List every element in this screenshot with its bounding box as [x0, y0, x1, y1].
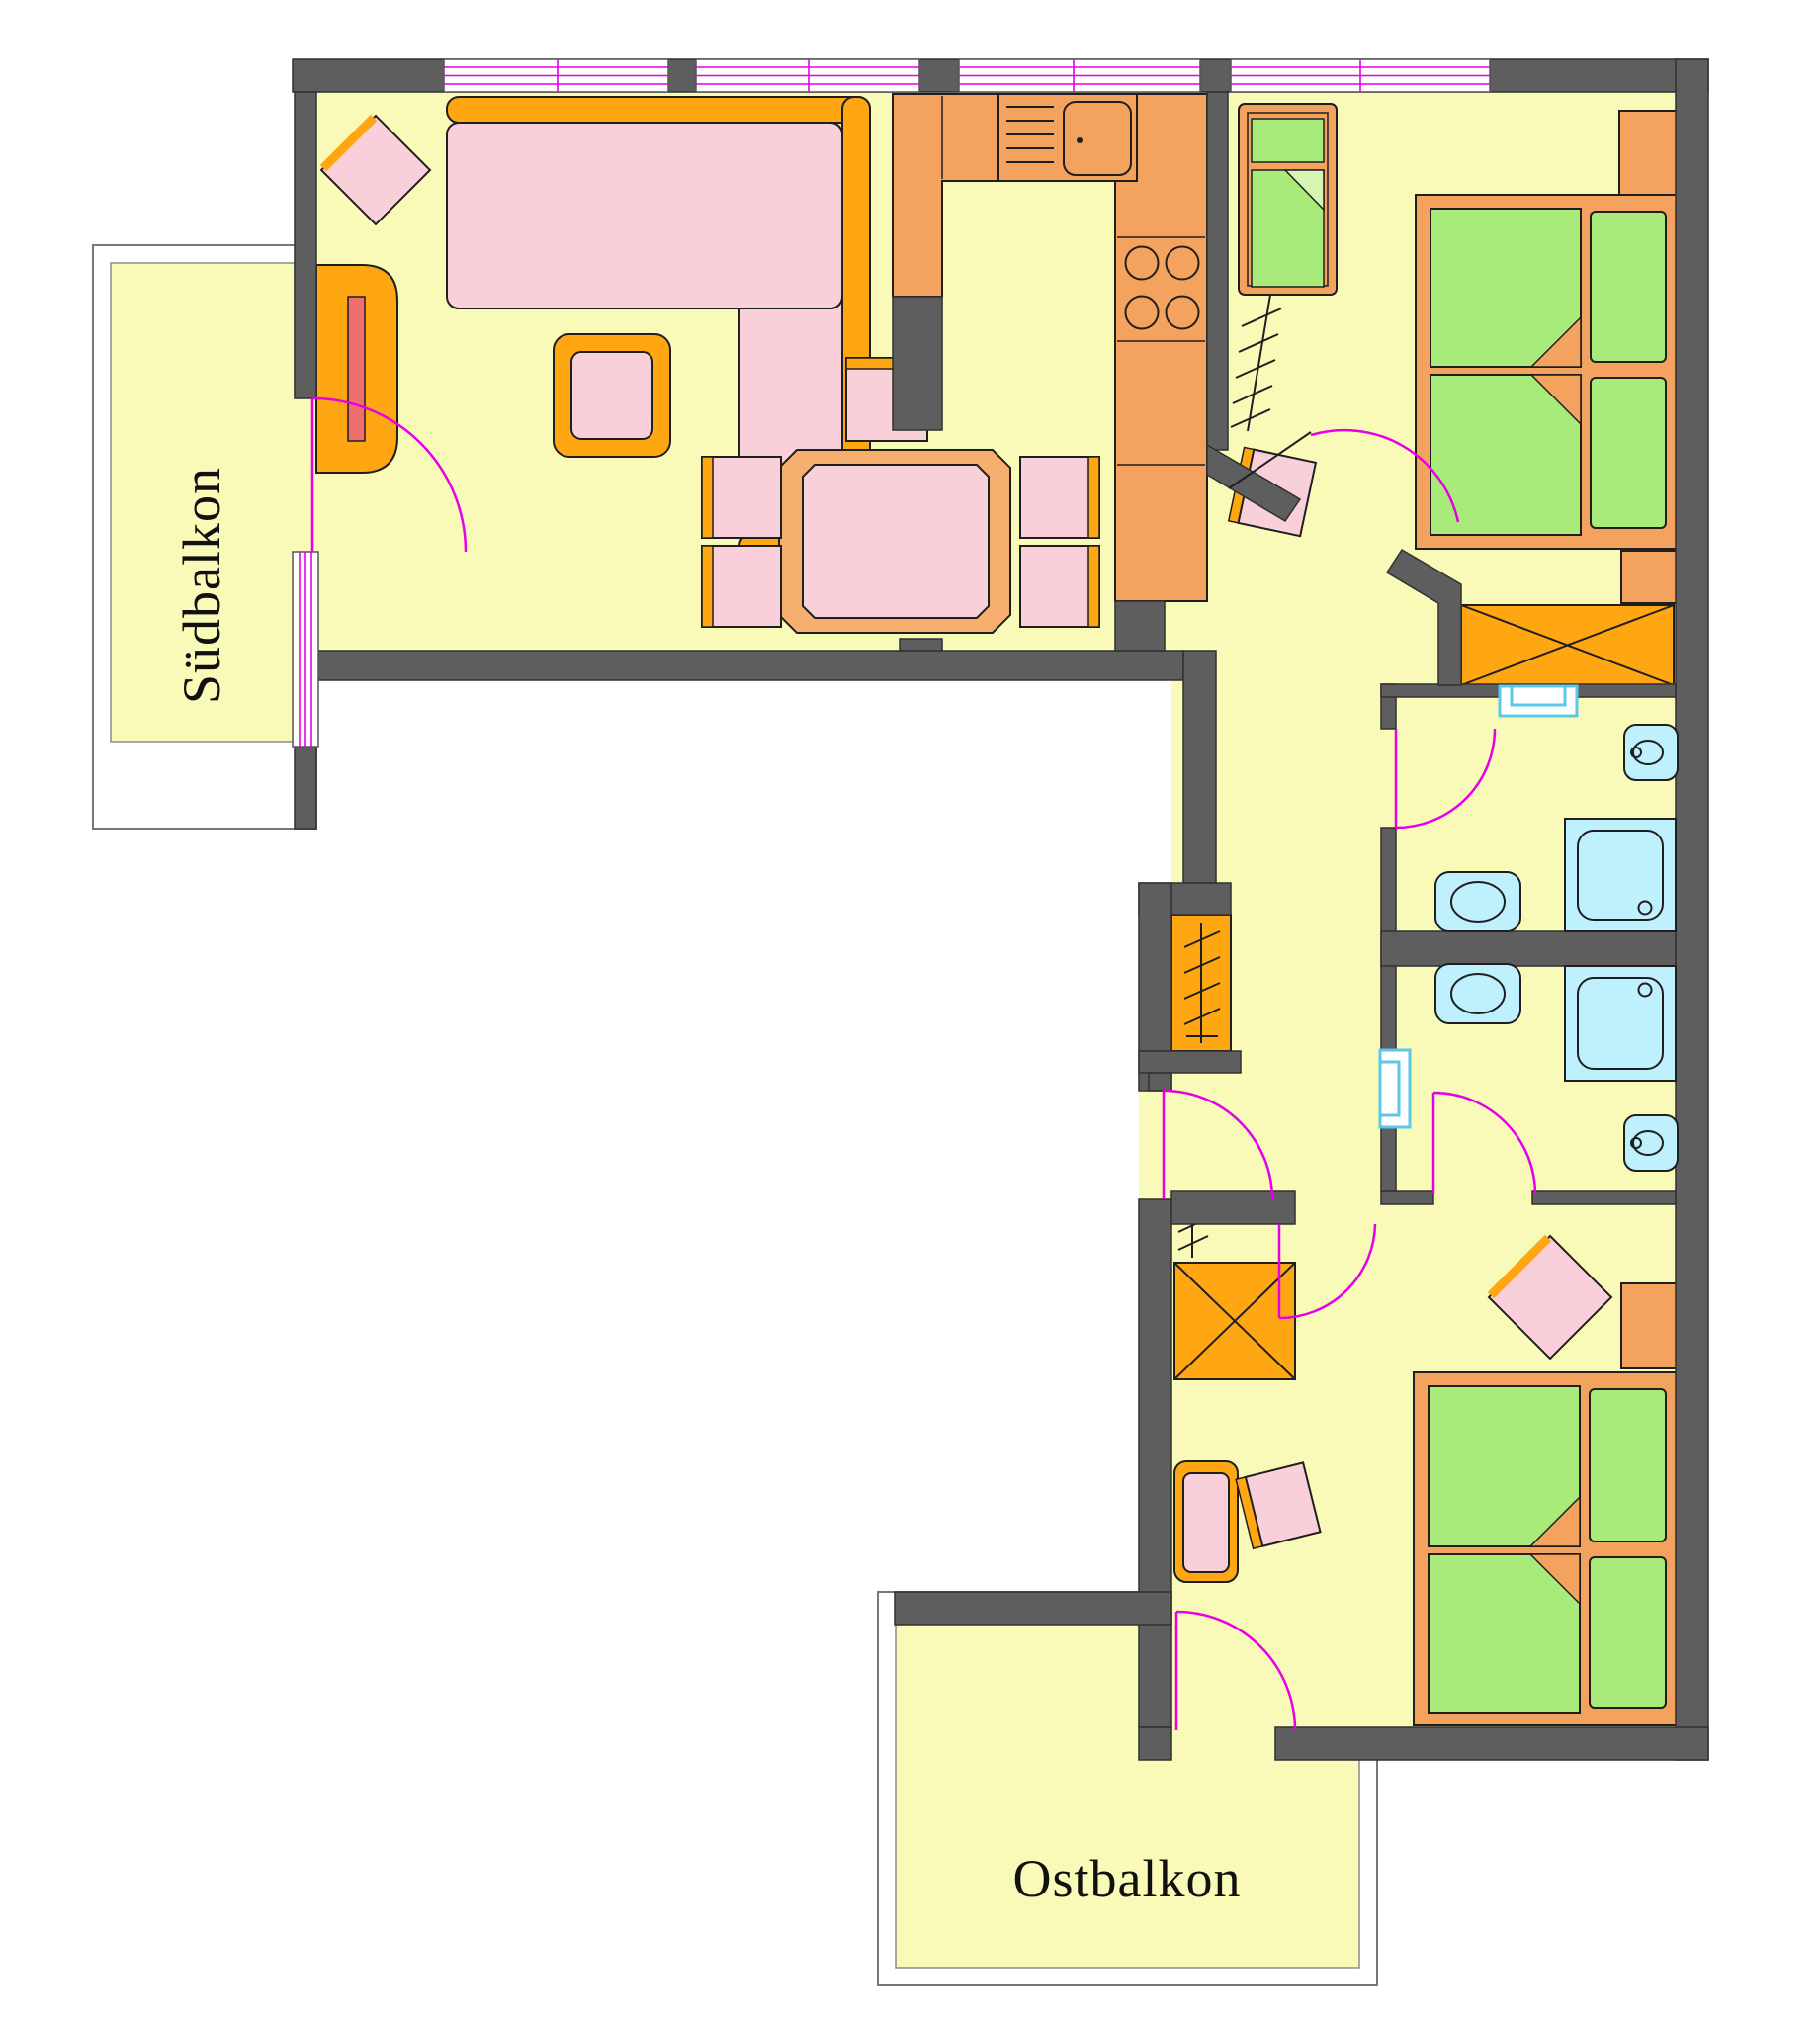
side-table: [554, 334, 670, 457]
built-in-wardrobe-x-bedroom2: [1174, 1263, 1295, 1379]
toilet-bath1: [1435, 872, 1520, 931]
window-bedroom1: [1231, 59, 1490, 92]
coat-rack-niche: [1171, 915, 1231, 1051]
window-living-2: [696, 59, 919, 92]
east-balcony-label: Ostbalkon: [1013, 1849, 1242, 1908]
interior-window-bath1: [1500, 686, 1577, 716]
kitchen-sink: [998, 94, 1137, 181]
window-living-side: [293, 552, 318, 747]
dining-table: [779, 450, 1010, 633]
washbasin-bath2: [1435, 964, 1520, 1023]
washbasin-bath1: [1624, 725, 1678, 780]
shower-bath1: [1565, 819, 1676, 931]
toilet-bath2: [1624, 1115, 1678, 1171]
tall-cabinet: [893, 297, 942, 430]
floor-plan: Südbalkon Ostbalkon: [0, 0, 1820, 2025]
built-in-wardrobe-x-hall: [1461, 605, 1674, 685]
window-kitchen: [959, 59, 1200, 92]
south-balcony-label: Südbalkon: [172, 467, 231, 704]
interior-window-bath2: [1380, 1050, 1410, 1127]
floor-plan-drawing: Südbalkon Ostbalkon: [0, 0, 1820, 2025]
shower-bath2: [1565, 966, 1676, 1081]
bench-bedroom2: [1174, 1461, 1238, 1582]
tv-cabinet: [316, 265, 397, 473]
window-living-1: [444, 59, 668, 92]
child-bed: [1239, 104, 1337, 295]
